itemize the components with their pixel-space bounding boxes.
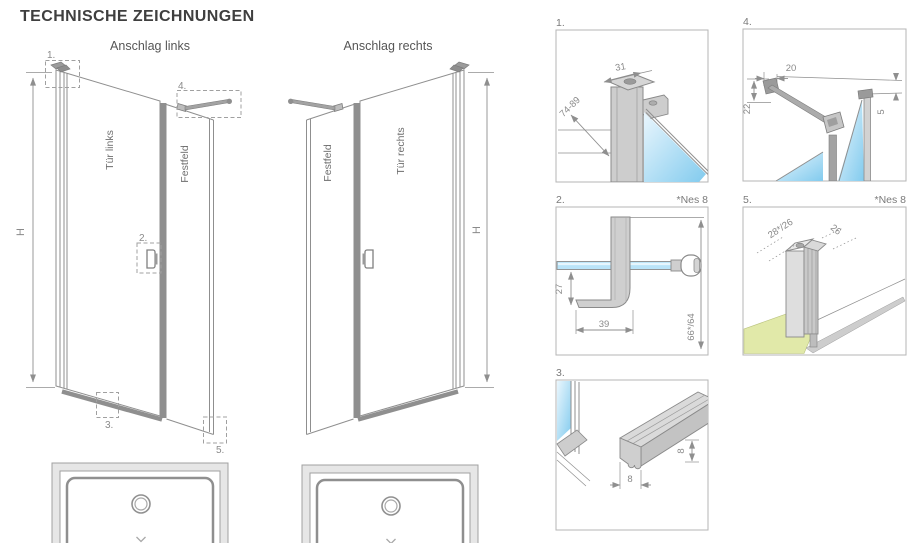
callout-boxes	[46, 61, 242, 444]
detail-4-label: 4.	[743, 16, 752, 28]
detail-box-4	[743, 29, 906, 181]
callout-1-label: 1.	[47, 50, 55, 61]
shower-tray-left	[52, 463, 228, 543]
technical-drawings-page: TECHNISCHE ZEICHNUNGEN Anschlag links An…	[0, 0, 912, 543]
detail-2-dim-height: 66*/64	[686, 313, 697, 340]
detail-4-dim-left: 22	[742, 104, 753, 115]
detail-5-label: 5.	[743, 194, 752, 206]
left-fixed-panel-label: Festfeld	[179, 145, 191, 183]
callout-4-label: 4.	[178, 81, 186, 92]
detail-2-dim-drop: 27	[554, 284, 565, 295]
detail-5-note: *Nes 8	[874, 194, 906, 206]
detail-3-label: 3.	[556, 367, 565, 379]
left-door-label: Tür links	[104, 130, 116, 170]
detail-4-dim-top: 20	[786, 63, 797, 74]
door-drawing-right	[288, 62, 494, 435]
detail-1-dim-width: 31	[614, 61, 626, 74]
right-door-label: Tür rechts	[395, 127, 407, 174]
drawing-labels: H Tür links Festfeld Festfeld Tür rechts…	[15, 50, 483, 456]
callout-3-label: 3.	[105, 420, 113, 431]
detail-4-dim-right: 5	[876, 109, 887, 114]
shower-tray-right	[302, 465, 478, 543]
right-fixed-panel-label: Festfeld	[322, 144, 334, 182]
drawings-canvas: H Tür links Festfeld Festfeld Tür rechts…	[0, 0, 912, 543]
detail-2-label: 2.	[556, 194, 565, 206]
callout-2-label: 2.	[139, 233, 147, 244]
detail-1-label: 1.	[556, 17, 565, 29]
detail-2-dim-width: 39	[599, 319, 610, 330]
detail-2-note: *Nes 8	[676, 194, 708, 206]
left-height-label: H	[15, 228, 27, 236]
right-height-label: H	[471, 226, 483, 234]
callout-5-label: 5.	[216, 445, 224, 456]
detail-3-dim-height: 8	[676, 448, 687, 453]
detail-3-dim-width: 8	[627, 474, 632, 485]
